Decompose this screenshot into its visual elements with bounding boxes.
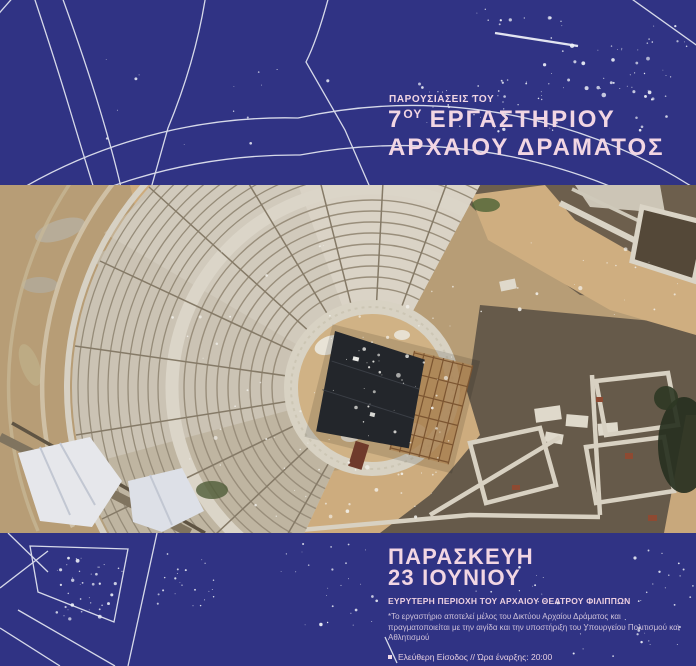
kicker-text: ΠΑΡΟΥΣΙΑΣΕΙΣ ΤΟΥ bbox=[389, 94, 665, 105]
plan-line bbox=[0, 628, 60, 666]
plan-line bbox=[18, 610, 115, 666]
title-ordinal: ΟΥ bbox=[403, 107, 422, 121]
organizer-note: *Το εργαστήριο αποτελεί μέλος του Δικτύο… bbox=[388, 612, 680, 644]
plan-line bbox=[128, 533, 157, 666]
header-title-block: ΠΑΡΟΥΣΙΑΣΕΙΣ ΤΟΥ 7ΟΥΕΡΓΑΣΤΗΡΙΟΥ ΑΡΧΑΙΟΥ … bbox=[388, 94, 665, 160]
title-line-2: ΑΡΧΑΙΟΥ ΔΡΑΜΑΤΟΣ bbox=[388, 136, 665, 161]
title-line-1: 7ΟΥΕΡΓΑΣΤΗΡΙΟΥ bbox=[388, 108, 665, 136]
plan-line bbox=[61, 0, 122, 185]
theatre-illustration bbox=[0, 185, 696, 533]
tree bbox=[654, 386, 678, 410]
plan-line bbox=[150, 0, 206, 185]
plan-line bbox=[33, 0, 95, 185]
event-poster: ΠΑΡΟΥΣΙΑΣΕΙΣ ΤΟΥ 7ΟΥΕΡΓΑΣΤΗΡΙΟΥ ΑΡΧΑΙΟΥ … bbox=[0, 0, 696, 666]
plan-rect bbox=[30, 546, 128, 622]
square-bullet-icon bbox=[388, 655, 392, 659]
plan-line bbox=[8, 533, 48, 572]
admission-line: Ελεύθερη Είσοδος // Ώρα έναρξης: 20:00 bbox=[388, 652, 680, 662]
event-location: ΕΥΡΥΤΕΡΗ ΠΕΡΙΟΧΗ ΤΟΥ ΑΡΧΑΙΟΥ ΘΕΑΤΡΟΥ ΦΙΛ… bbox=[388, 596, 680, 606]
footer-info-block: ΠΑΡΑΣΚΕΥΗ 23 ΙΟΥΝΙΟΥ ΕΥΡΥΤΕΡΗ ΠΕΡΙΟΧΗ ΤΟ… bbox=[388, 546, 680, 662]
plan-line bbox=[306, 0, 372, 185]
aerial-photo-ancient-theatre bbox=[0, 185, 696, 533]
title-number: 7 bbox=[388, 106, 403, 133]
title-rest: ΕΡΓΑΣΤΗΡΙΟΥ bbox=[430, 106, 616, 133]
plan-line bbox=[0, 551, 48, 588]
plan-line bbox=[622, 0, 696, 52]
plan-line bbox=[0, 0, 16, 18]
event-day: ΠΑΡΑΣΚΕΥΗ bbox=[388, 546, 680, 567]
paint-streak bbox=[495, 33, 578, 46]
vegetation bbox=[196, 481, 228, 499]
event-date: 23 ΙΟΥΝΙΟΥ bbox=[388, 567, 680, 588]
admission-text: Ελεύθερη Είσοδος // Ώρα έναρξης: 20:00 bbox=[398, 652, 552, 662]
